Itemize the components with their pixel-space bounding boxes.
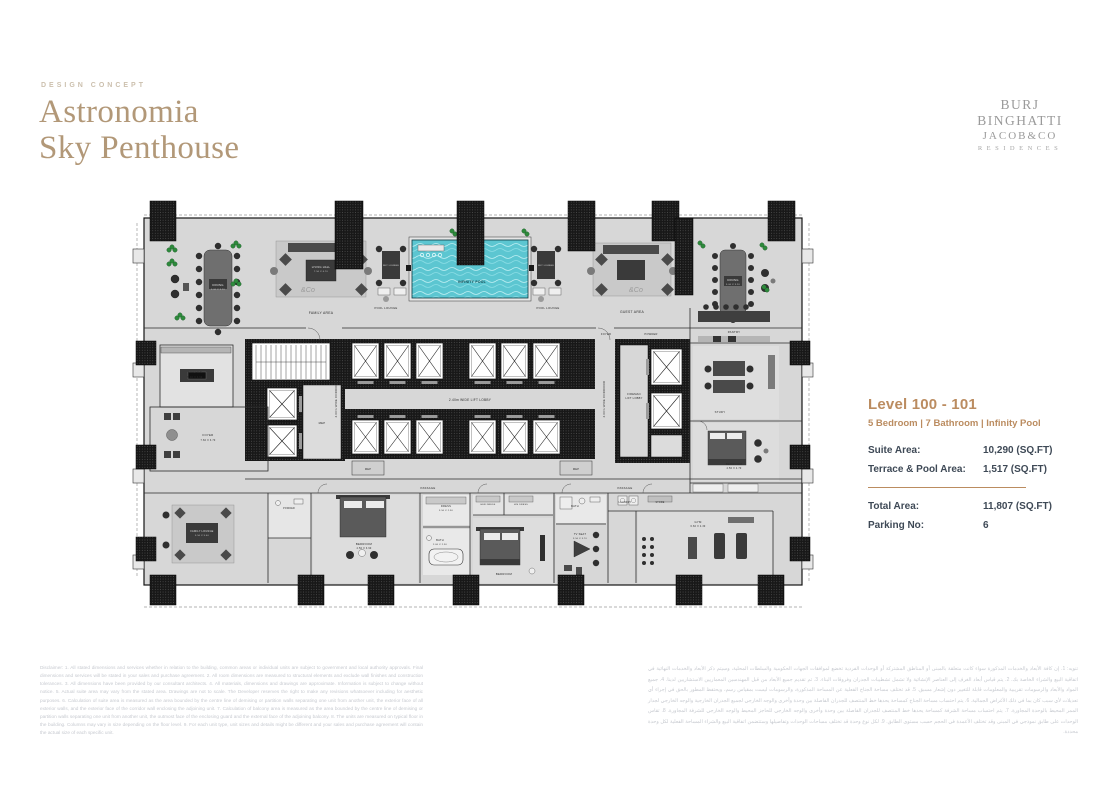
svg-text:BATH: BATH xyxy=(436,538,444,542)
svg-text:MEP: MEP xyxy=(319,421,326,425)
svg-text:SKY LOUNGE: SKY LOUNGE xyxy=(538,265,554,267)
svg-text:5.50 X 5.40: 5.50 X 5.40 xyxy=(195,535,209,537)
svg-text:3.50 X 3.70: 3.50 X 3.70 xyxy=(573,538,587,540)
design-concept-label: DESIGN CONCEPT xyxy=(41,82,146,89)
svg-text:MEP: MEP xyxy=(573,467,579,471)
svg-text:3.50 X 2.30: 3.50 X 2.30 xyxy=(439,510,453,512)
svg-text:DINING: DINING xyxy=(212,283,223,287)
svg-text:MEP: MEP xyxy=(365,467,371,471)
svg-text:PASSAGE: PASSAGE xyxy=(618,486,633,490)
svg-text:BEDROOM: BEDROOM xyxy=(726,462,743,466)
floor-plan: FAMILY AREAPOOL LOUNGEPOOL LOUNGEINFINIT… xyxy=(128,193,818,613)
svg-text:GUEST AREA: GUEST AREA xyxy=(620,310,645,314)
disclaimer-english: Disclaimer: 1. All stated dimensions and… xyxy=(40,664,423,738)
svg-text:HER DRESS: HER DRESS xyxy=(480,504,495,506)
title-line-1: Astronomia xyxy=(39,94,239,130)
svg-text:BATH: BATH xyxy=(571,504,579,508)
brand-name: BURJ BINGHATTI xyxy=(960,97,1080,129)
page: { "header": { "eyebrow": "DESIGN CONCEPT… xyxy=(0,0,1118,790)
svg-text:2.00m WIDE CORRIDOR: 2.00m WIDE CORRIDOR xyxy=(602,381,606,418)
svg-text:&Co: &Co xyxy=(629,287,643,294)
parking-label: Parking No: xyxy=(868,520,983,531)
brand-residences: RESIDENCES xyxy=(960,145,1080,152)
suite-area-row: Suite Area: 10,290 (SQ.FT) xyxy=(868,445,1078,456)
svg-text:SKY LOUNGE: SKY LOUNGE xyxy=(383,265,399,267)
svg-text:FIREMAN: FIREMAN xyxy=(627,392,640,396)
svg-text:LAUNDRY: LAUNDRY xyxy=(619,501,632,504)
svg-text:POWDER: POWDER xyxy=(644,332,657,336)
disclaimer-arabic: تنويه: 1. إن كافة الأبعاد والخدمات المذك… xyxy=(648,664,1078,738)
parking-value: 6 xyxy=(983,520,1078,531)
svg-text:GYM: GYM xyxy=(694,520,702,524)
svg-text:5.00 X 3.20: 5.00 X 3.20 xyxy=(211,289,225,291)
page-title: Astronomia Sky Penthouse xyxy=(39,94,239,166)
svg-text:FAMILY AREA: FAMILY AREA xyxy=(309,311,334,315)
svg-text:STUDY: STUDY xyxy=(715,410,726,414)
info-panel: Level 100 - 101 5 Bedroom | 7 Bathroom |… xyxy=(868,396,1078,539)
svg-text:TV SEAT: TV SEAT xyxy=(574,532,587,536)
svg-text:DINING: DINING xyxy=(727,278,738,282)
svg-text:4.50 X 4.70: 4.50 X 4.70 xyxy=(727,467,742,470)
total-area-value: 11,807 (SQ.FT) xyxy=(983,501,1078,512)
svg-text:FOYER: FOYER xyxy=(203,433,214,437)
parking-row: Parking No: 6 xyxy=(868,520,1078,531)
divider xyxy=(868,487,1026,488)
svg-text:BEDROOM: BEDROOM xyxy=(496,572,513,576)
level-subtitle: 5 Bedroom | 7 Bathroom | Infinity Pool xyxy=(868,418,1078,429)
svg-text:PANTRY: PANTRY xyxy=(728,330,741,334)
svg-text:BEDROOM: BEDROOM xyxy=(356,542,373,546)
brand-partner: JACOB&CO xyxy=(960,130,1080,142)
svg-text:FAMILY LOUNGE: FAMILY LOUNGE xyxy=(190,530,213,533)
svg-text:HIS DRESS: HIS DRESS xyxy=(514,504,528,506)
terrace-pool-area-value: 1,517 (SQ.FT) xyxy=(983,464,1078,475)
svg-text:5.00 X 3.20: 5.00 X 3.20 xyxy=(726,284,740,286)
svg-text:STORE: STORE xyxy=(655,502,664,504)
svg-text:LIVING HALL: LIVING HALL xyxy=(312,265,331,269)
svg-text:5.40 X 3.90: 5.40 X 3.90 xyxy=(188,376,203,379)
svg-text:4.50 X 3.90: 4.50 X 3.90 xyxy=(357,547,372,550)
svg-text:POOL LOUNGE: POOL LOUNGE xyxy=(374,306,397,310)
svg-text:POWDER: POWDER xyxy=(283,508,295,510)
svg-text:DRESS: DRESS xyxy=(441,504,451,508)
svg-text:2.60 X 2.30: 2.60 X 2.30 xyxy=(433,544,447,546)
svg-text:FOYER: FOYER xyxy=(601,332,611,336)
svg-text:7.50 X 6.70: 7.50 X 6.70 xyxy=(314,271,328,273)
suite-area-label: Suite Area: xyxy=(868,445,983,456)
total-area-label: Total Area: xyxy=(868,501,983,512)
terrace-pool-area-label: Terrace & Pool Area: xyxy=(868,464,983,475)
svg-text:2.00m WIDE CORRIDOR: 2.00m WIDE CORRIDOR xyxy=(334,381,338,418)
svg-text:KITCHEN: KITCHEN xyxy=(188,370,202,374)
title-line-2: Sky Penthouse xyxy=(39,130,239,166)
svg-text:&Co: &Co xyxy=(301,287,315,294)
svg-text:2.40m WIDE LIFT LOBBY: 2.40m WIDE LIFT LOBBY xyxy=(449,398,492,402)
svg-text:7.60 X 3.70: 7.60 X 3.70 xyxy=(201,439,216,442)
brand-logo: BURJ BINGHATTI JACOB&CO RESIDENCES xyxy=(960,97,1080,152)
svg-text:PASSAGE: PASSAGE xyxy=(421,486,436,490)
svg-text:6.60 X 4.30: 6.60 X 4.30 xyxy=(691,525,706,528)
total-area-row: Total Area: 11,807 (SQ.FT) xyxy=(868,501,1078,512)
svg-text:INFINITY POOL: INFINITY POOL xyxy=(458,280,486,284)
suite-area-value: 10,290 (SQ.FT) xyxy=(983,445,1078,456)
svg-text:LIFT LOBBY: LIFT LOBBY xyxy=(625,396,642,400)
terrace-pool-area-row: Terrace & Pool Area: 1,517 (SQ.FT) xyxy=(868,464,1078,475)
level-title: Level 100 - 101 xyxy=(868,396,1078,413)
svg-text:POOL LOUNGE: POOL LOUNGE xyxy=(536,306,559,310)
